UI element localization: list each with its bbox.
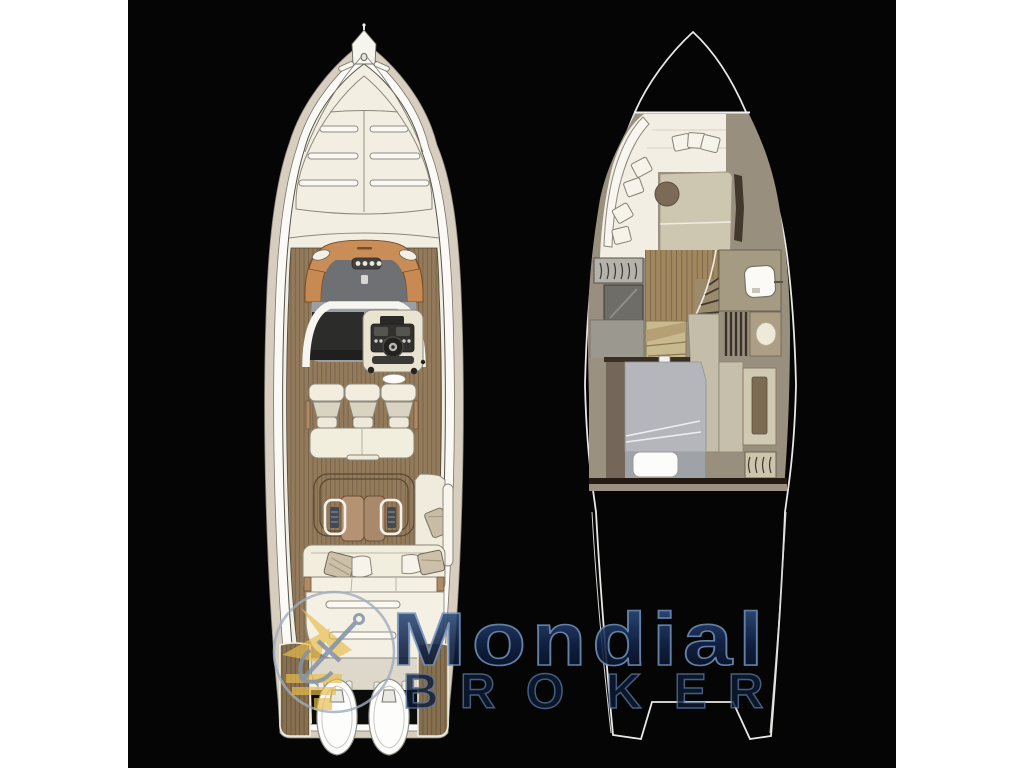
svg-text:K: K: [606, 665, 641, 719]
svg-text:B: B: [403, 665, 438, 719]
svg-text:Mondial: Mondial: [392, 598, 769, 681]
svg-text:O: O: [526, 665, 564, 719]
svg-text:E: E: [674, 665, 707, 719]
svg-text:R: R: [460, 665, 495, 719]
svg-text:R: R: [728, 665, 763, 719]
